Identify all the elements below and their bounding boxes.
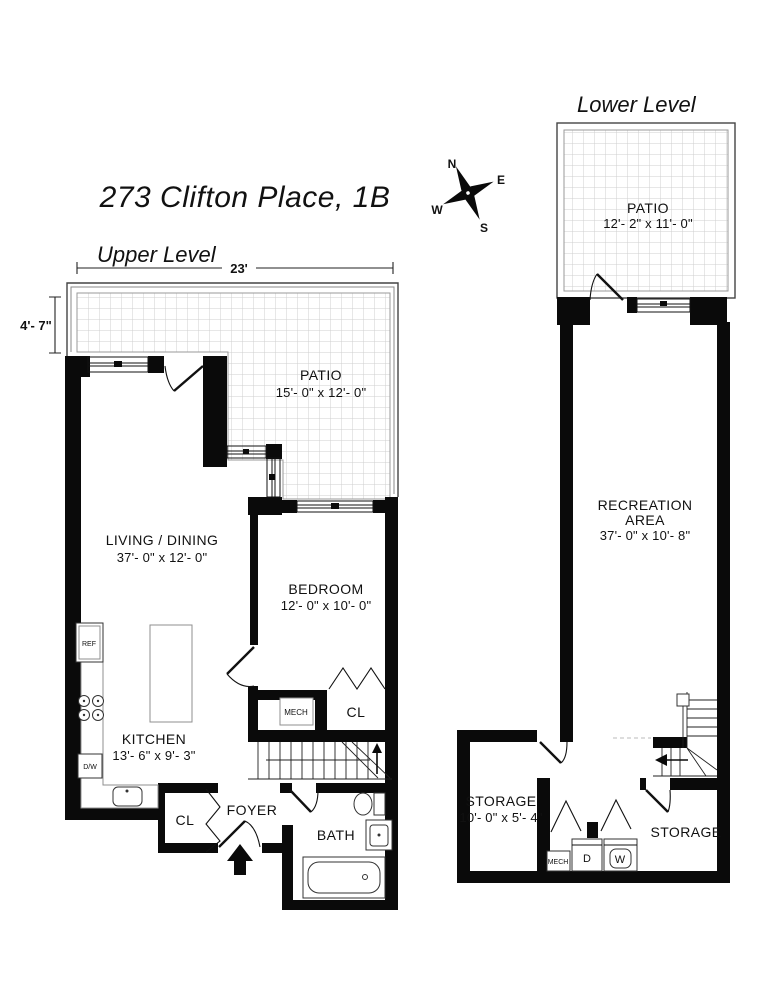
kitchen-island: [150, 625, 192, 722]
living-dining-dims: 37'- 0" x 12'- 0": [117, 550, 208, 565]
dryer: D: [572, 839, 602, 871]
kitchen-dims: 13'- 6" x 9'- 3": [112, 748, 195, 763]
dishwasher-label: D/W: [83, 764, 97, 771]
foyer-closet-label: CL: [176, 812, 195, 828]
storage-left-label: STORAGE: [465, 793, 536, 809]
laundry-bifold-door-right: [601, 800, 631, 831]
bath-fixtures: [303, 793, 392, 898]
laundry-bifold-door-left: [551, 801, 581, 832]
mech-room-upper: MECH: [280, 698, 313, 725]
floor-plan-page: 273 Clifton Place, 1B N E W S Upper Leve…: [0, 0, 773, 1000]
patio-depth-dimension-label: 4'- 7": [20, 318, 52, 333]
stairs-down-arrow-icon: [655, 754, 688, 766]
lower-patio-dims: 12'- 2" x 11'- 0": [603, 216, 693, 231]
page-title: 273 Clifton Place, 1B: [99, 181, 391, 214]
compass-east-label: E: [497, 173, 505, 187]
bathtub: [303, 857, 385, 898]
lower-level-doors: [540, 742, 670, 832]
lower-level-plan: Lower Level PATIO 12'- 2" x 11'- 0": [457, 92, 735, 883]
mech-room-lower: MECH: [547, 851, 570, 871]
refrigerator-label: REF: [82, 641, 96, 648]
lower-patio-label: PATIO: [627, 200, 669, 216]
bath-sink: [366, 820, 392, 850]
patio-depth-dimension: 4'- 7": [20, 297, 61, 353]
patio-door: [165, 366, 203, 391]
kitchen-fixtures: REF D/W: [76, 623, 192, 808]
compass-icon: N E W S: [430, 154, 506, 235]
lower-stairs: [613, 692, 717, 776]
compass-south-label: S: [480, 221, 488, 235]
bedroom-label: BEDROOM: [288, 581, 363, 597]
floor-plan: 273 Clifton Place, 1B N E W S Upper Leve…: [0, 0, 773, 1000]
mech-room-lower-label: MECH: [548, 859, 569, 866]
refrigerator: REF: [76, 623, 103, 662]
storage-left-dims: 10'- 0" x 5'- 4": [459, 810, 542, 825]
recreation-area-dims: 37'- 0" x 10'- 8": [600, 528, 691, 543]
entry-arrow-icon: [227, 844, 253, 875]
entry-door: [219, 821, 260, 847]
bedroom-window: [297, 501, 373, 512]
recreation-area-label-2: AREA: [625, 512, 665, 528]
bedroom-closet-bifold-door: [329, 668, 385, 689]
upper-stairs: [248, 742, 392, 779]
upper-patio: PATIO 15'- 0" x 12'- 0": [67, 283, 398, 499]
living-room-window: [88, 357, 148, 372]
bedroom-door: [227, 647, 254, 687]
storage-right-label: STORAGE: [650, 824, 721, 840]
foyer-closet-bifold-door: [206, 789, 220, 852]
upper-level-plan: Upper Level 23' 4'- 7" PATIO 15'- 0" x 1…: [20, 242, 398, 910]
compass-west-label: W: [431, 203, 443, 217]
bedroom-dims: 12'- 0" x 10'- 0": [281, 598, 372, 613]
lower-patio-window: [637, 299, 690, 312]
lower-patio: PATIO 12'- 2" x 11'- 0": [557, 123, 735, 298]
mech-room-upper-label: MECH: [284, 708, 308, 717]
bath-door: [290, 790, 318, 812]
laundry-fixtures: MECH D W: [547, 839, 637, 871]
dryer-label: D: [583, 853, 591, 865]
upper-width-dimension-label: 23': [230, 261, 248, 276]
living-dining-label: LIVING / DINING: [106, 532, 219, 548]
hallway-window-vertical: [267, 458, 280, 497]
upper-patio-dims: 15'- 0" x 12'- 0": [276, 385, 367, 400]
recreation-area-label-1: RECREATION: [598, 497, 693, 513]
foyer-label: FOYER: [227, 802, 278, 818]
upper-level-title: Upper Level: [97, 242, 217, 267]
storage-right-door: [646, 790, 670, 812]
compass-north-label: N: [448, 157, 457, 171]
washer: W: [604, 839, 637, 871]
bath-label: BATH: [317, 827, 355, 843]
storage-left-door: [540, 742, 567, 763]
bedroom-closet-label: CL: [347, 704, 366, 720]
toilet: [354, 793, 385, 815]
dishwasher: D/W: [78, 754, 102, 778]
upper-patio-label: PATIO: [300, 367, 342, 383]
lower-level-title: Lower Level: [577, 92, 697, 117]
kitchen-sink: [113, 787, 142, 806]
stair-newel-post: [677, 694, 689, 706]
kitchen-label: KITCHEN: [122, 731, 186, 747]
washer-label: W: [615, 854, 626, 866]
